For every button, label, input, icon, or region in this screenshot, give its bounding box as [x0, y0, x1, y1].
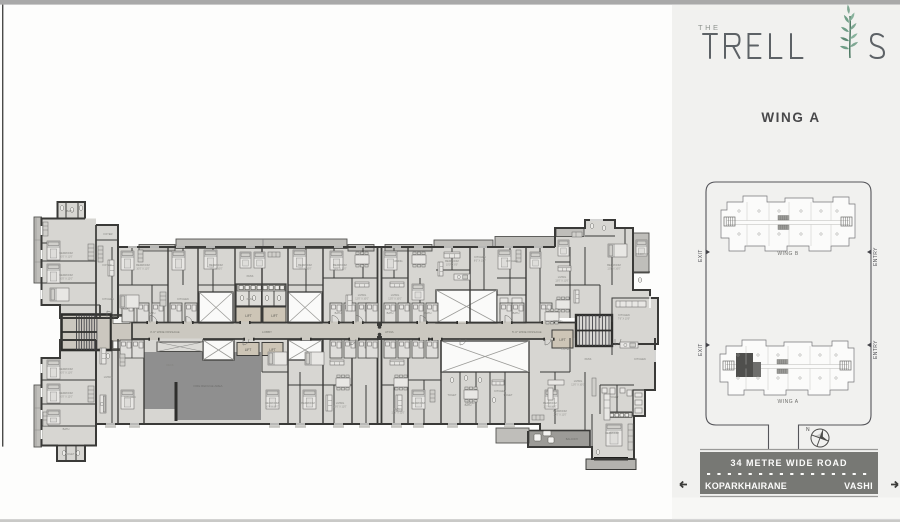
svg-text:12'0" X 10'0": 12'0" X 10'0" — [355, 297, 369, 300]
svg-text:DECK: DECK — [166, 363, 173, 367]
svg-text:13'0" X 11'6": 13'0" X 11'6" — [555, 279, 568, 282]
svg-text:BATH: BATH — [425, 311, 432, 315]
svg-text:BATH: BATH — [387, 311, 394, 315]
svg-text:BATH: BATH — [149, 311, 156, 315]
svg-text:WING A: WING A — [777, 399, 798, 405]
svg-text:EXIT: EXIT — [698, 343, 704, 356]
svg-text:LIFT: LIFT — [245, 314, 252, 318]
svg-text:LIFT: LIFT — [269, 348, 276, 352]
svg-text:BEDROOM: BEDROOM — [59, 251, 72, 255]
svg-text:10'0" X 11'0": 10'0" X 11'0" — [136, 267, 149, 270]
svg-text:PASS: PASS — [247, 274, 254, 278]
svg-text:8'0" X 10'0": 8'0" X 10'0" — [474, 259, 486, 262]
svg-text:LIFT: LIFT — [245, 348, 252, 352]
svg-text:DINING: DINING — [553, 319, 562, 323]
svg-text:LIVING: LIVING — [336, 401, 345, 405]
svg-text:FIRE REFUGE AREA: FIRE REFUGE AREA — [193, 384, 222, 388]
svg-text:TOILET: TOILET — [65, 452, 74, 456]
svg-text:LIFT: LIFT — [271, 314, 278, 318]
svg-text:BEDROOM: BEDROOM — [136, 263, 149, 267]
svg-text:KITCHEN: KITCHEN — [124, 395, 136, 399]
svg-text:TOILET: TOILET — [609, 395, 618, 399]
svg-text:11'0" X 10'0": 11'0" X 10'0" — [607, 267, 620, 270]
svg-text:11'0" X 10'0": 11'0" X 10'0" — [543, 405, 556, 408]
svg-text:BATH: BATH — [67, 209, 74, 213]
svg-text:BEDROOM: BEDROOM — [298, 263, 311, 267]
svg-text:BEDROOM: BEDROOM — [59, 367, 72, 371]
svg-text:N: N — [806, 427, 810, 433]
svg-text:10'0" X 12'0": 10'0" X 12'0" — [59, 395, 73, 398]
svg-text:10'0" X 12'0": 10'0" X 12'0" — [59, 277, 73, 280]
svg-text:13'6" X 11'0": 13'6" X 11'0" — [391, 411, 404, 414]
svg-text:EXIT: EXIT — [698, 249, 704, 262]
svg-text:PASS: PASS — [247, 297, 254, 301]
svg-text:BEDROOM: BEDROOM — [411, 401, 424, 405]
svg-text:5'-0" WIDE PASSAGE: 5'-0" WIDE PASSAGE — [512, 330, 542, 334]
svg-text:PASS: PASS — [585, 357, 592, 361]
svg-text:DINING: DINING — [393, 259, 402, 263]
svg-text:THE: THE — [698, 23, 721, 32]
svg-text:LIVING: LIVING — [394, 407, 403, 411]
svg-text:LIVING: LIVING — [358, 293, 367, 297]
svg-text:BATH: BATH — [465, 403, 472, 407]
svg-text:BEDROOM: BEDROOM — [445, 259, 458, 263]
svg-text:BEDROOM: BEDROOM — [301, 401, 314, 405]
svg-text:BATH: BATH — [335, 311, 342, 315]
svg-text:12'6" X 10'0": 12'6" X 10'0" — [571, 383, 585, 386]
svg-text:BEDROOM: BEDROOM — [607, 263, 620, 267]
svg-text:ENTRY: ENTRY — [873, 340, 879, 359]
svg-text:13'6" X 11'0": 13'6" X 11'0" — [333, 267, 346, 270]
svg-text:LIVING: LIVING — [558, 275, 567, 279]
svg-text:7'6" X 10'0": 7'6" X 10'0" — [618, 317, 630, 320]
svg-text:FOYER: FOYER — [104, 232, 113, 236]
svg-text:34 METRE WIDE ROAD: 34 METRE WIDE ROAD — [730, 458, 847, 468]
svg-text:12'0" X 10'0": 12'0" X 10'0" — [388, 297, 402, 300]
svg-text:ATRIA: ATRIA — [385, 330, 394, 334]
svg-text:KOPARKHAIRANE: KOPARKHAIRANE — [705, 481, 787, 491]
svg-text:KITCHEN: KITCHEN — [177, 297, 189, 301]
svg-text:BALCONY: BALCONY — [566, 437, 579, 441]
svg-text:KITCHEN: KITCHEN — [474, 255, 486, 259]
svg-text:FOYER: FOYER — [562, 347, 571, 351]
svg-text:ENTRY: ENTRY — [873, 247, 879, 266]
svg-text:10'0" X 11'6": 10'0" X 11'6" — [59, 255, 72, 258]
svg-text:TOILET: TOILET — [447, 393, 456, 397]
svg-text:WING B: WING B — [777, 251, 798, 257]
svg-text:TOILET: TOILET — [503, 393, 512, 397]
svg-text:BEDROOM: BEDROOM — [636, 252, 649, 256]
svg-text:13'6" X 11'0": 13'6" X 11'0" — [333, 405, 346, 408]
svg-text:KITCHEN: KITCHEN — [634, 357, 646, 361]
svg-text:FOYER: FOYER — [103, 263, 112, 267]
svg-text:LIVING: LIVING — [104, 375, 113, 379]
svg-text:KITCHEN: KITCHEN — [506, 259, 518, 263]
svg-text:10'0" X 8'0": 10'0" X 8'0" — [446, 263, 458, 266]
svg-text:11'0" X 10'0": 11'0" X 10'0" — [298, 267, 311, 270]
svg-text:BEDROOM: BEDROOM — [209, 263, 222, 267]
svg-text:KITCHEN: KITCHEN — [618, 313, 630, 317]
svg-text:BEDROOM: BEDROOM — [59, 391, 72, 395]
svg-text:10'0" X 11'0": 10'0" X 11'0" — [553, 413, 566, 416]
svg-text:LIVING: LIVING — [574, 379, 583, 383]
svg-text:KITCHEN: KITCHEN — [494, 389, 506, 393]
svg-text:WING A: WING A — [761, 110, 820, 125]
svg-text:3'-6" WIDE PASSAGE: 3'-6" WIDE PASSAGE — [150, 330, 180, 334]
svg-text:VASHI: VASHI — [844, 481, 873, 491]
svg-text:BATH: BATH — [513, 311, 520, 315]
svg-text:BEDROOM: BEDROOM — [605, 431, 618, 435]
svg-text:BEDROOM: BEDROOM — [553, 409, 566, 413]
svg-text:BEDROOM: BEDROOM — [265, 401, 278, 405]
svg-text:LOBBY: LOBBY — [262, 330, 272, 334]
svg-text:BEDROOM: BEDROOM — [59, 273, 72, 277]
svg-text:BATH: BATH — [63, 427, 70, 431]
svg-text:11'0" X 10'0": 11'0" X 10'0" — [209, 267, 222, 270]
svg-text:LIFT: LIFT — [559, 338, 566, 342]
svg-text:KITCHEN: KITCHEN — [102, 297, 114, 301]
svg-text:BEDROOM: BEDROOM — [333, 263, 346, 267]
svg-text:10'0" X 11'6": 10'0" X 11'6" — [59, 371, 72, 374]
svg-text:LIVING: LIVING — [391, 293, 400, 297]
svg-text:10'0" X 11'0": 10'0" X 11'0" — [265, 405, 278, 408]
svg-text:BEDROOM: BEDROOM — [543, 401, 556, 405]
